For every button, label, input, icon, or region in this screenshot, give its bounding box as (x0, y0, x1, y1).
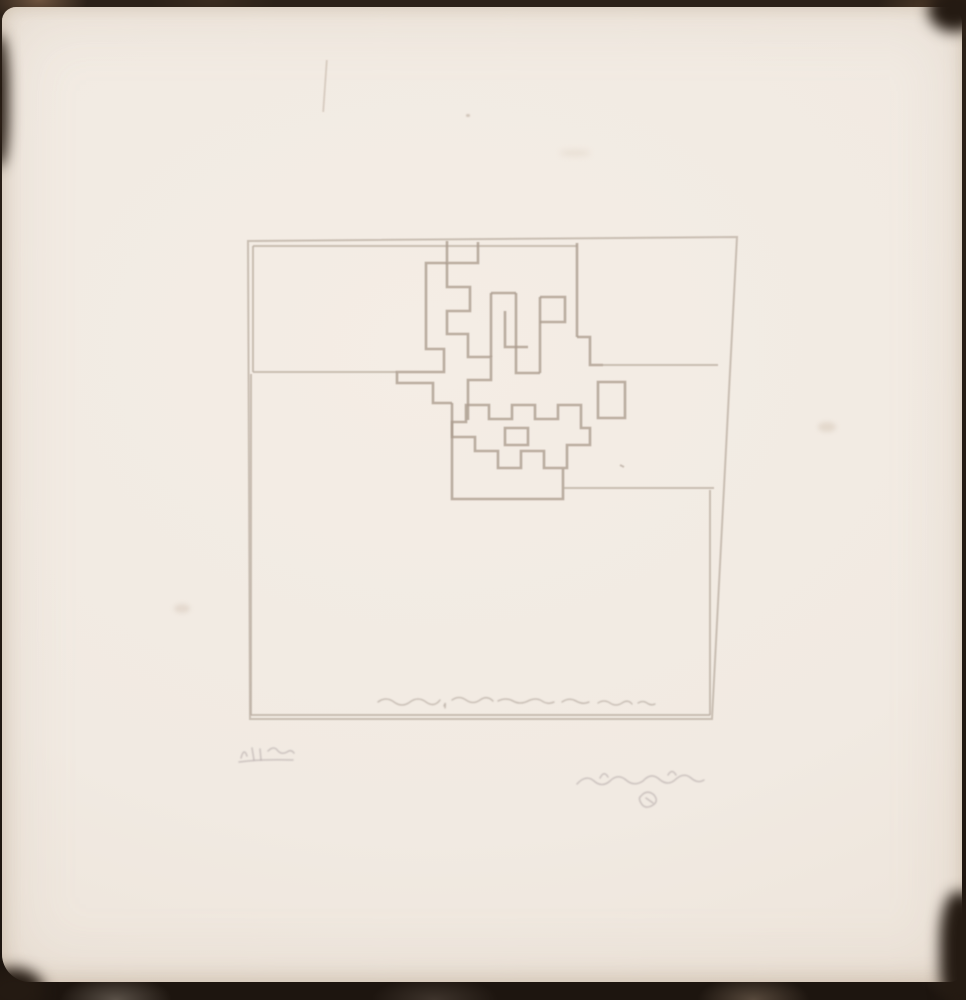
inscription-stroke (562, 699, 589, 703)
plate-line-drawing (248, 237, 737, 719)
edition-stroke (252, 748, 254, 760)
signature-stroke (600, 774, 608, 778)
meander-right-hook-path (540, 297, 565, 322)
edition-stroke (260, 749, 261, 760)
inscription-stroke (452, 698, 493, 703)
edition-stroke (241, 752, 247, 758)
inscription-stroke (598, 701, 632, 705)
crown-inner-path (505, 428, 528, 445)
edition-stroke (239, 760, 293, 762)
top-notch-box-path (447, 241, 478, 263)
plate-outline-path (248, 237, 737, 719)
signature-flourish-tick (646, 798, 653, 803)
right-rect-box-path (598, 382, 625, 418)
inscription-stroke (444, 703, 445, 708)
edition-stroke (268, 748, 294, 753)
meander-right-stem-path (516, 293, 540, 373)
artist-signature-pencil (577, 772, 704, 808)
etching-artwork (0, 0, 966, 1000)
inscription-stroke (498, 699, 554, 703)
photographed-artwork-scene (0, 0, 966, 1000)
meander-outer-chain-path (577, 337, 603, 365)
signature-stroke (577, 775, 704, 784)
inscription-stroke (638, 702, 655, 705)
meander-chain-left-path (397, 263, 452, 403)
edition-mark-pencil (239, 748, 294, 762)
meander-spiral-left-path (447, 263, 491, 420)
inscription-stroke (378, 699, 440, 705)
plate-inscription-handwriting (378, 698, 655, 709)
crown-outline-path (452, 405, 590, 468)
signature-stroke (668, 772, 676, 776)
stray-dot-path (620, 465, 624, 467)
